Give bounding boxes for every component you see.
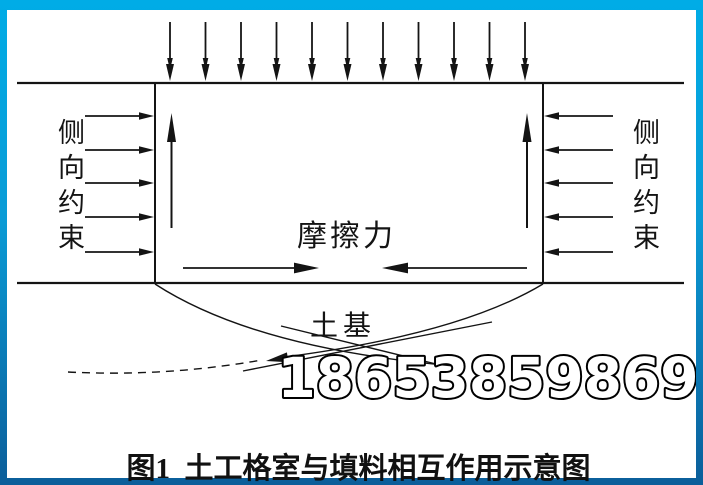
- figure-caption: 图1 土工格室与填料相互作用示意图: [7, 445, 703, 485]
- figure-page: 侧向约束 侧向约束 摩擦力 土基 18653859869 图1 土工格室与填料相…: [0, 0, 703, 485]
- watermark-phone: 18653859869: [278, 346, 696, 410]
- diagram-canvas: 侧向约束 侧向约束 摩擦力 土基 18653859869 图1 土工格室与填料相…: [7, 10, 696, 478]
- watermark-layer: 18653859869: [7, 10, 696, 478]
